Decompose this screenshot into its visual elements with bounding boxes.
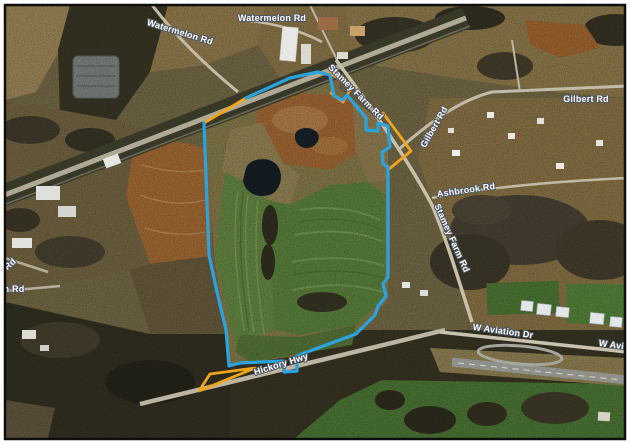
hangar [521,300,534,311]
house [598,412,610,422]
building [337,52,348,59]
house [556,163,564,169]
house [508,133,515,139]
hangar [536,303,551,315]
building [350,26,365,36]
satellite-imagery: Watermelon Rd Watermelon Rd Stamey Farm … [0,0,630,444]
house [487,112,494,118]
house [448,128,454,133]
building [40,345,49,351]
road-label-partial-h-rd: h Rd [4,284,25,294]
road-label-gilbert-rd: Gilbert Rd [563,94,609,104]
map-canvas[interactable]: Watermelon Rd Watermelon Rd Stamey Farm … [0,0,630,444]
building [301,44,311,64]
building [22,330,36,339]
house [596,140,603,146]
building [36,186,60,200]
house [402,282,410,288]
hangar [589,312,604,324]
house [420,290,428,296]
house [452,150,460,156]
building [318,17,338,30]
road-label-watermelon-rd: Watermelon Rd [238,13,306,23]
screenshot-page: Watermelon Rd Watermelon Rd Stamey Farm … [0,0,630,444]
building [58,206,76,217]
hangar [556,306,570,317]
hangar [610,316,623,327]
building [12,238,32,248]
warehouse [280,26,299,61]
house [537,118,544,124]
